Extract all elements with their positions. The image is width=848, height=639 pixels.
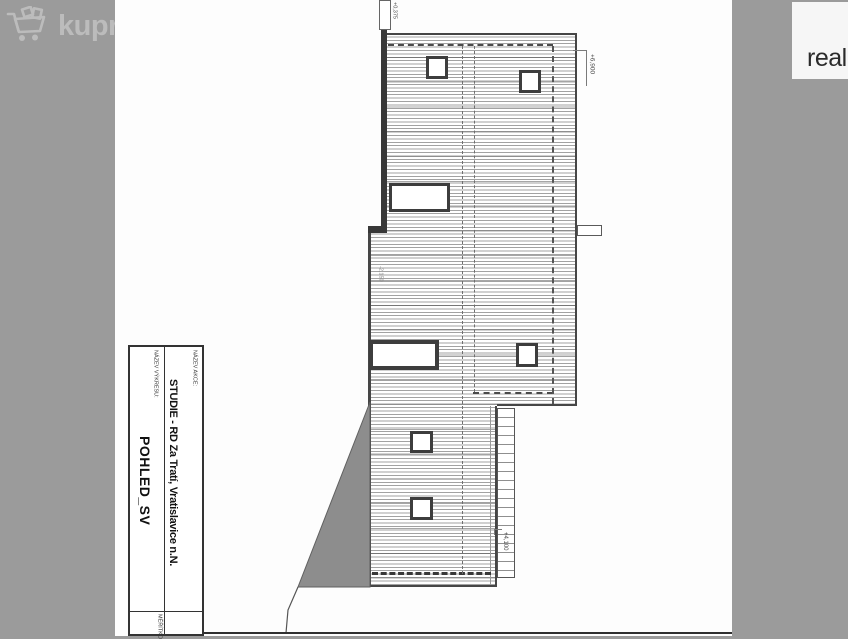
dashed-line-bottom	[372, 572, 491, 575]
agency-logo-box: reali	[792, 2, 848, 79]
dashed-line-mid	[473, 392, 553, 394]
title-block-divider-horizontal	[130, 611, 202, 612]
window-2	[519, 70, 541, 93]
window-1	[426, 56, 448, 79]
window-6	[410, 431, 433, 453]
sheet-frame-line	[204, 632, 732, 634]
left-step-corner	[368, 226, 387, 233]
window-5	[516, 343, 538, 367]
roof-dim-leader-h	[573, 50, 586, 51]
upper-block-bottom-edge	[497, 404, 577, 406]
wall-protrusion	[577, 225, 602, 236]
title-block-divider-vertical	[164, 347, 165, 634]
view-name-label: NÁZEV VÝKRESU:	[152, 350, 158, 398]
corner-board-line	[490, 406, 491, 585]
level-label-annex: +4,100	[502, 532, 508, 551]
terrain-profile	[280, 395, 380, 636]
level-label-roof: +6,900	[588, 54, 595, 74]
view-name-value: POHLED_SV	[138, 436, 152, 525]
window-4-wide	[369, 340, 439, 370]
stair-annex	[497, 408, 515, 578]
annex-dim-leader-h	[494, 529, 502, 530]
project-name-label: NÁZEV AKCE:	[191, 350, 197, 386]
level-label-floor: -2,150	[377, 266, 383, 282]
project-name-value: STUDIE - RD Za Tratí, Vratislavice n.N.	[167, 379, 178, 566]
dashed-line-right	[552, 46, 554, 404]
window-7	[410, 497, 433, 520]
roof-dim-leader-v	[586, 50, 587, 86]
shopping-cart-icon	[6, 6, 50, 44]
building-bottom-edge	[368, 585, 497, 587]
listing-photo-page: { "watermark": { "brand": "kupre", "icon…	[0, 0, 848, 636]
building-right-edge	[575, 33, 577, 406]
dashed-line-top	[388, 44, 553, 46]
annex-dim-leader-v	[494, 529, 495, 535]
roof-edge-line	[384, 33, 577, 35]
dashed-axis-1	[462, 46, 463, 574]
building-left-thick-edge	[381, 26, 387, 226]
window-3-wide	[389, 183, 450, 212]
level-label-parapet: +0,375	[391, 2, 397, 19]
agency-logo-text: reali	[807, 44, 848, 73]
title-block: NÁZEV VÝKRESU: NÁZEV AKCE: STUDIE - RD Z…	[128, 345, 204, 636]
dashed-axis-2	[474, 46, 475, 392]
scale-label: MĚŘÍTKO	[156, 614, 162, 639]
level-marker-box	[379, 0, 391, 30]
